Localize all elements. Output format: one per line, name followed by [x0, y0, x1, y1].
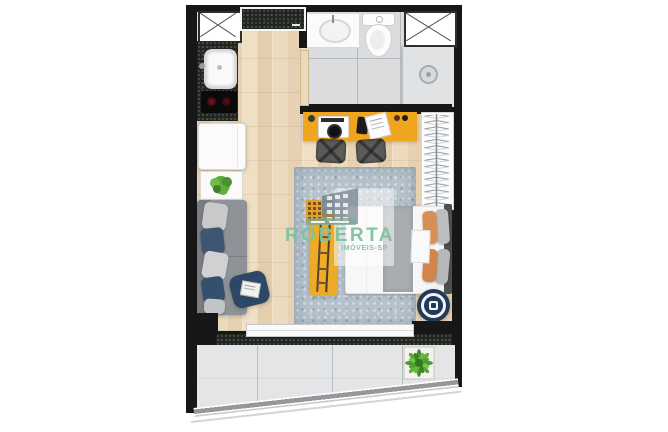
door-handle-icon [292, 24, 300, 26]
bathroom-door [300, 50, 309, 106]
bed-cushion-white [410, 230, 430, 264]
notebook [364, 112, 391, 141]
watermark-brand: ROBERTA [284, 225, 396, 247]
entry-mat [240, 7, 306, 31]
wardrobe-hanger-rail [421, 112, 454, 210]
desk-knob-icon [308, 115, 315, 122]
sink-drain-icon [217, 65, 222, 70]
watermark: ROBERTA IMÓVEIS-SP [284, 184, 396, 274]
kitchen-faucet-icon [199, 63, 205, 69]
utility-shaft-right [404, 11, 457, 47]
bathroom-vanity [306, 13, 360, 48]
planter-plant-icon [403, 346, 435, 380]
burner-icon [207, 97, 216, 106]
shower-drain-icon [419, 65, 438, 84]
bottom-left-wall [186, 313, 218, 347]
sliding-glass-door [246, 324, 414, 337]
toilet [362, 13, 393, 57]
refrigerator [198, 123, 246, 170]
shaft-x-icon [406, 13, 451, 41]
toilet-flush-button [376, 16, 383, 23]
hangers-icon [422, 113, 451, 207]
burner-icon [222, 97, 231, 106]
magazine-icon [240, 280, 261, 298]
watermark-tagline-bar [306, 218, 356, 225]
floorplan-canvas: ROBERTA IMÓVEIS-SP [0, 0, 668, 432]
utility-shaft-left [198, 11, 242, 43]
potted-plant-icon [201, 172, 242, 199]
toilet-bowl [365, 24, 392, 57]
vanity-sink-basin [319, 19, 351, 43]
plant-side-table [200, 171, 243, 200]
tray-item-icon [429, 301, 438, 310]
vanity-faucet-icon [332, 15, 334, 23]
shaft-x-icon [200, 13, 236, 37]
kitchen-sink [204, 49, 237, 89]
desk-dot-black-icon [402, 115, 408, 121]
cooktop [201, 91, 237, 113]
watermark-agency: IMÓVEIS-SP [284, 245, 388, 252]
desk-dot-red-icon [394, 115, 400, 121]
round-side-table [417, 289, 450, 322]
toilet-seat [370, 30, 385, 50]
desk [303, 112, 417, 141]
shower [401, 45, 454, 107]
desk-chair-left [315, 138, 346, 164]
left-wall-extension [186, 347, 197, 413]
balcony-planter-box [403, 346, 435, 380]
desk-chair-right [355, 138, 387, 164]
record-player [318, 116, 349, 138]
